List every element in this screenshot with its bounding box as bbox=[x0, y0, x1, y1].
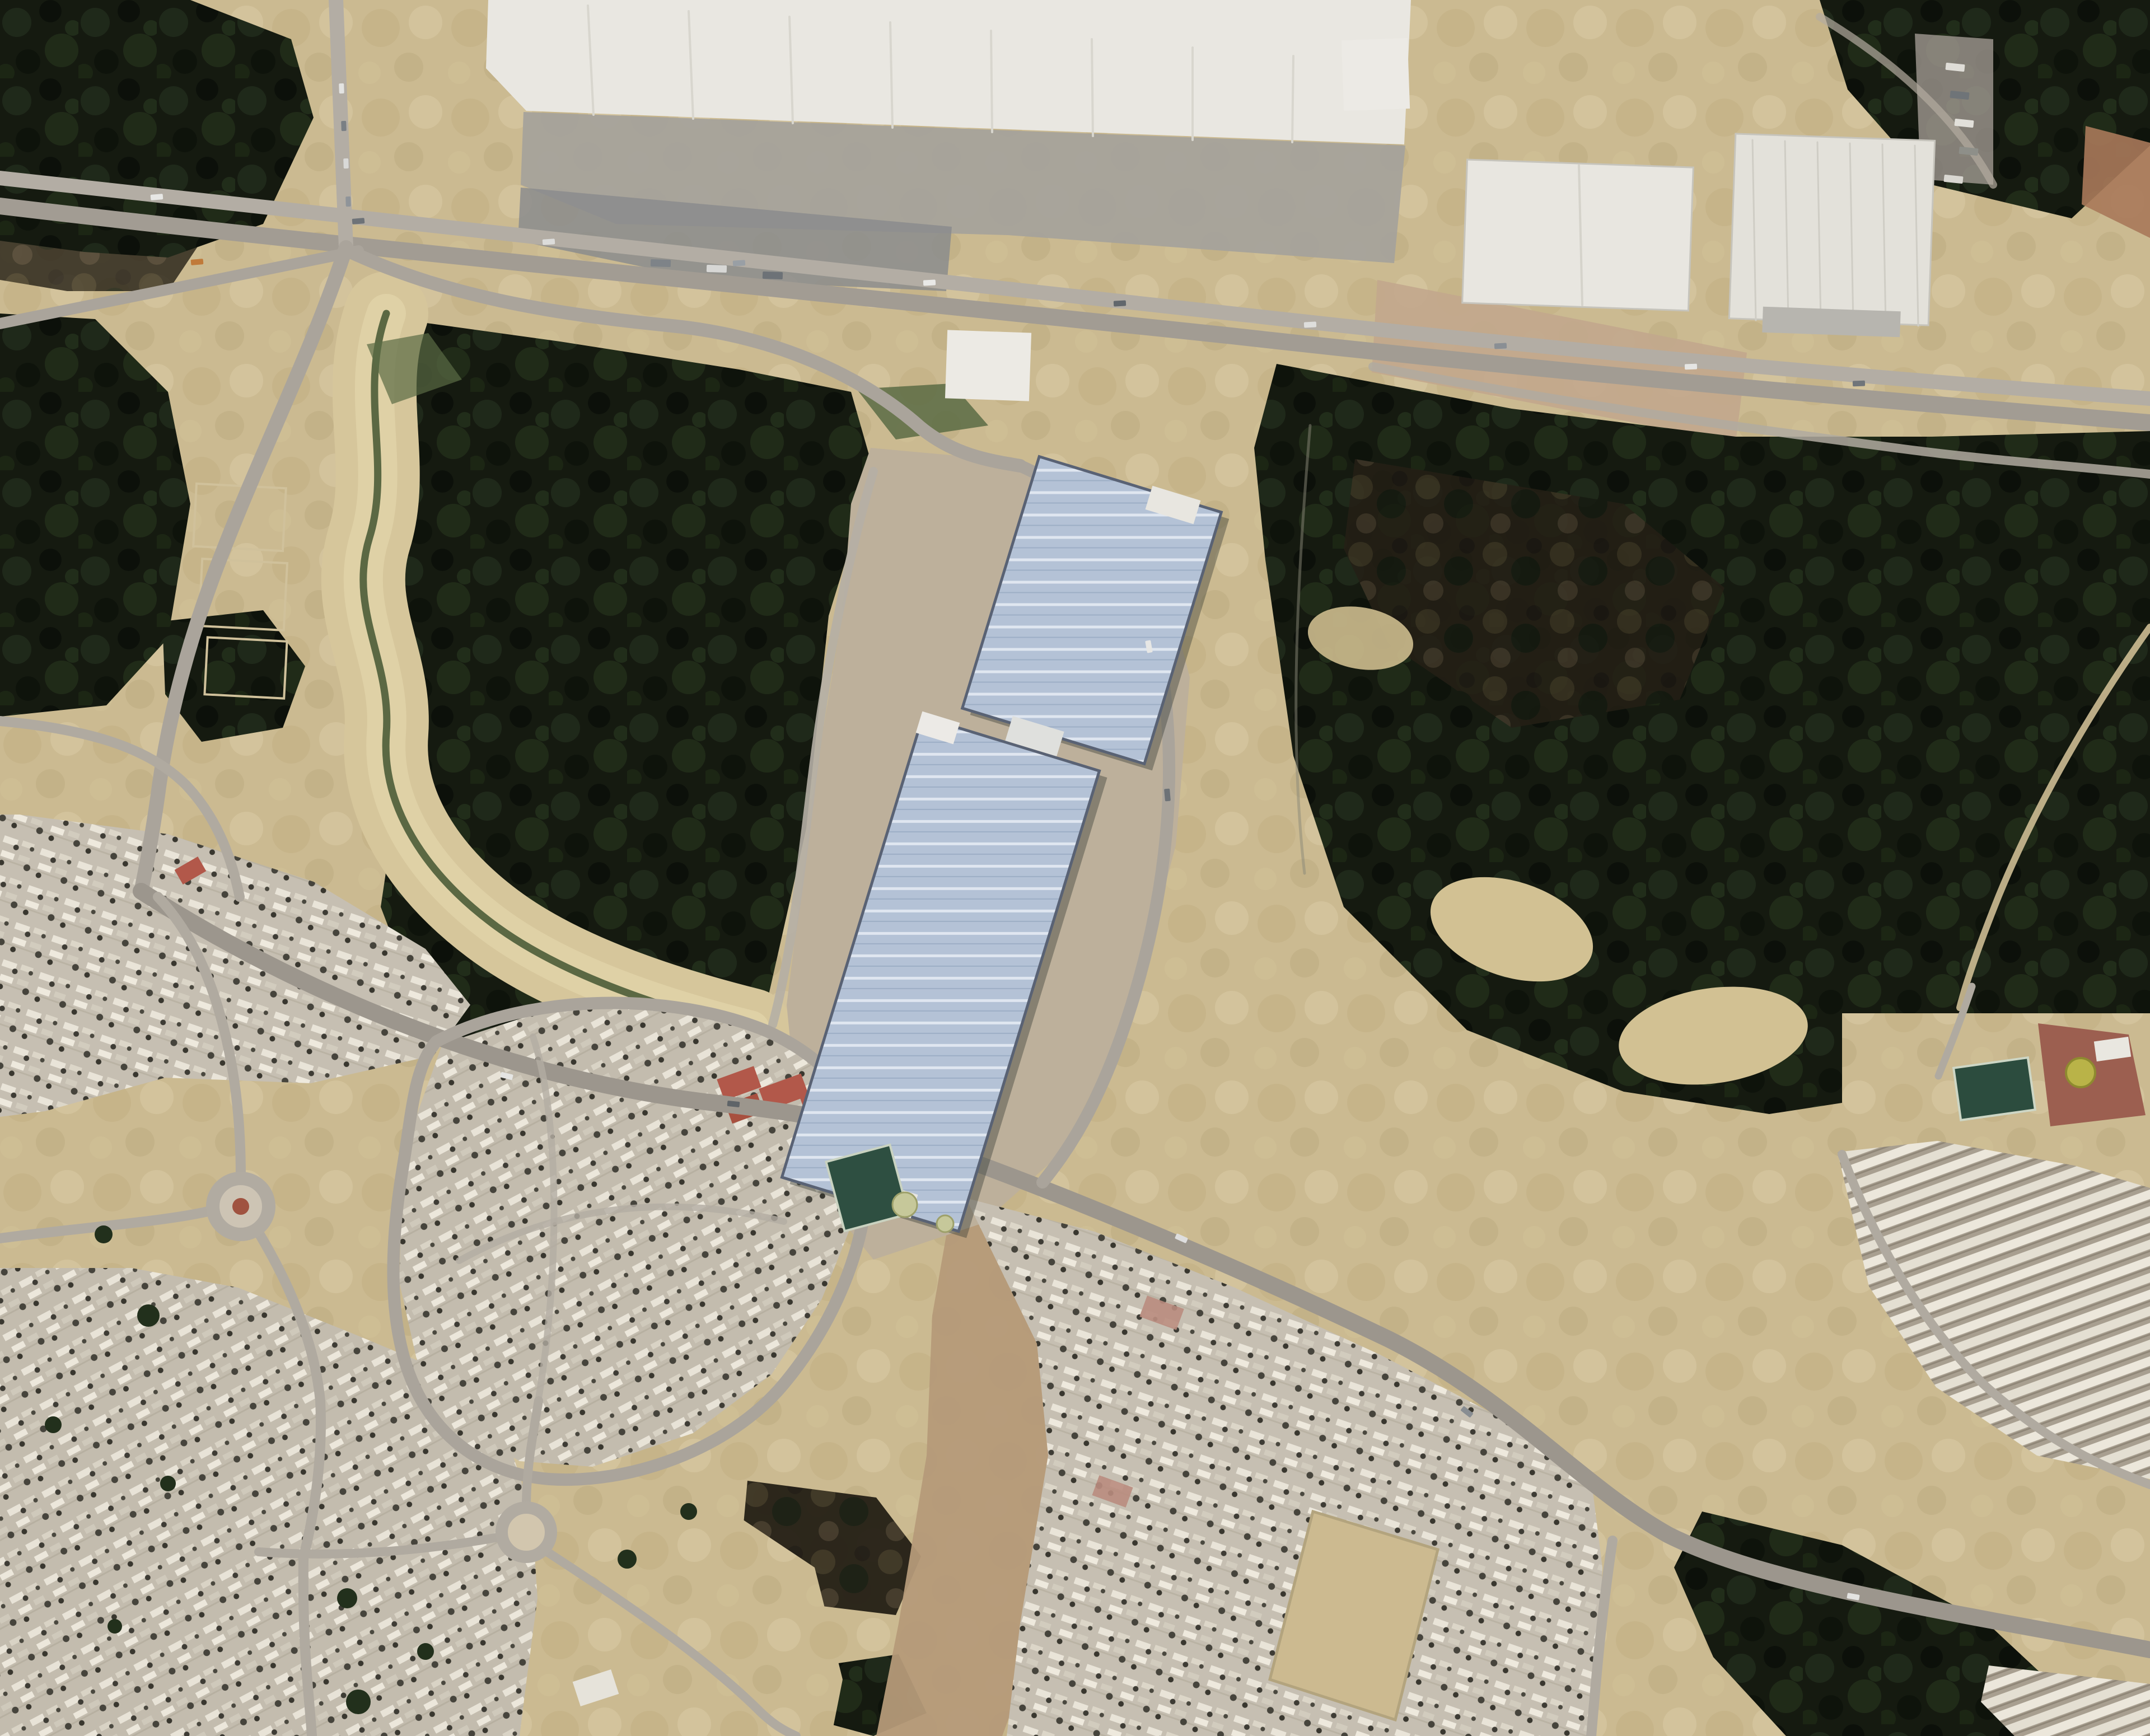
tree bbox=[160, 1476, 176, 1491]
court-green-right bbox=[1953, 1057, 2035, 1120]
vehicle bbox=[707, 265, 727, 273]
court-circle-right bbox=[2066, 1058, 2095, 1087]
roundabout-1-center bbox=[232, 1198, 249, 1215]
vehicle bbox=[343, 158, 349, 169]
tree bbox=[346, 1690, 371, 1714]
tree bbox=[337, 1588, 357, 1608]
tree bbox=[680, 1503, 697, 1520]
building-b-south-strip bbox=[1762, 307, 1900, 338]
map-feature-layer bbox=[0, 0, 2150, 1736]
vehicle bbox=[1494, 343, 1507, 349]
vehicle bbox=[651, 259, 671, 267]
vehicle bbox=[151, 194, 163, 200]
tree bbox=[107, 1619, 122, 1634]
building-top-right-b bbox=[1729, 134, 1934, 325]
vehicle bbox=[1685, 364, 1697, 370]
building-top-right-a bbox=[1462, 160, 1694, 311]
tree bbox=[137, 1304, 160, 1327]
vehicle bbox=[543, 238, 555, 245]
satellite-map-viewport[interactable] bbox=[0, 0, 2150, 1736]
vehicle bbox=[763, 272, 783, 279]
tree bbox=[45, 1416, 62, 1433]
vehicle bbox=[733, 260, 746, 266]
small-white-building bbox=[945, 330, 1031, 401]
vehicle bbox=[1114, 300, 1126, 306]
tree bbox=[618, 1550, 637, 1569]
roundabout-2 bbox=[502, 1508, 551, 1557]
vehicle bbox=[923, 279, 936, 286]
tree bbox=[417, 1643, 434, 1660]
vehicle bbox=[1853, 381, 1865, 387]
vehicle bbox=[352, 218, 365, 224]
vehicle bbox=[341, 121, 347, 131]
vehicle bbox=[339, 83, 344, 93]
small-white-piece bbox=[1342, 38, 1410, 111]
vehicle bbox=[1304, 321, 1316, 327]
satellite-image bbox=[0, 0, 2150, 1736]
tree bbox=[95, 1225, 113, 1243]
vehicle bbox=[345, 196, 351, 207]
park-circle-2 bbox=[937, 1215, 954, 1232]
vehicle bbox=[191, 259, 204, 265]
vehicle bbox=[1164, 789, 1171, 802]
park-circle-1 bbox=[892, 1192, 917, 1217]
